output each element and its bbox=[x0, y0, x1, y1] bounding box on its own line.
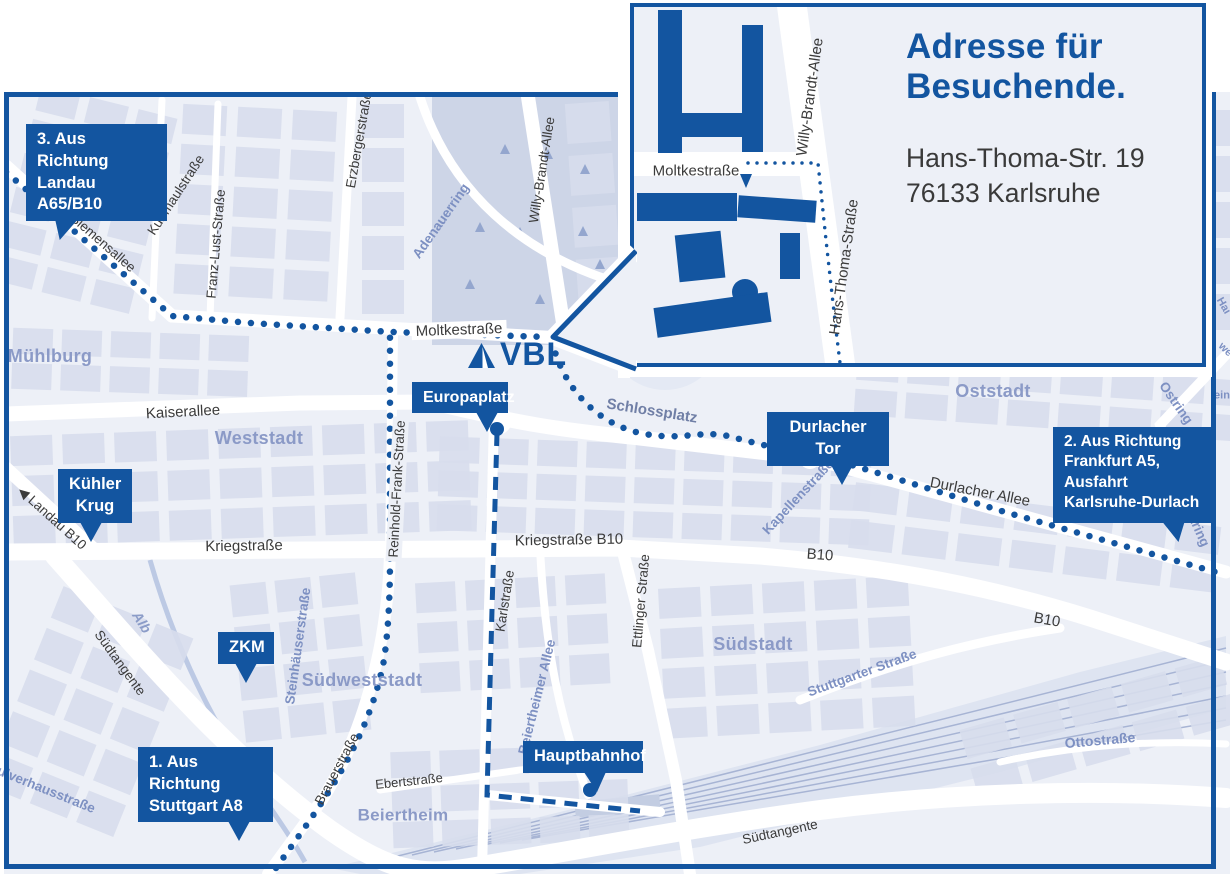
callout-kuehler-krug-pointer bbox=[80, 522, 102, 542]
visitor-address-inset: MoltkestraßeWilly-Brandt-AlleeHans-Thoma… bbox=[630, 3, 1206, 367]
callout-kuehler-krug: Kühler Krug bbox=[58, 469, 132, 523]
callout-frankfurt: 2. Aus Richtung Frankfurt A5, Ausfahrt K… bbox=[1053, 427, 1213, 523]
callout-europaplatz: Europaplatz bbox=[412, 382, 508, 413]
callout-landau-label: 3. Aus Richtung Landau A65/B10 bbox=[37, 130, 109, 213]
callout-zkm-label: ZKM bbox=[229, 638, 265, 656]
callout-durlacher-tor: Durlacher Tor bbox=[767, 412, 889, 466]
callout-frankfurt-label: 2. Aus Richtung Frankfurt A5, Ausfahrt K… bbox=[1064, 433, 1199, 511]
inset-title: Adresse für Besuchende. bbox=[906, 27, 1126, 108]
callout-landau: 3. Aus Richtung Landau A65/B10 bbox=[26, 124, 167, 221]
callout-hauptbahnhof-label: Hauptbahnhof bbox=[534, 747, 646, 765]
callout-stuttgart-label: 1. Aus Richtung Stuttgart A8 bbox=[149, 753, 243, 815]
callout-hauptbahnhof-pointer bbox=[584, 772, 608, 792]
inset-street-label-moltkestra-e: Moltkestraße bbox=[653, 164, 740, 179]
vbl-triangle-icon bbox=[468, 343, 495, 368]
inset-address: Hans-Thoma-Str. 19 76133 Karlsruhe bbox=[906, 141, 1145, 211]
callout-durlacher-tor-pointer bbox=[831, 465, 853, 485]
callout-europaplatz-pointer bbox=[476, 412, 498, 432]
inset-gap-right bbox=[1206, 0, 1212, 376]
callout-zkm: ZKM bbox=[218, 632, 274, 664]
callout-hauptbahnhof: Hauptbahnhof bbox=[523, 741, 643, 773]
callout-zkm-pointer bbox=[235, 663, 257, 683]
callout-stuttgart-pointer bbox=[228, 821, 250, 841]
vbl-logo-text: VBL bbox=[500, 342, 567, 368]
vbl-logo: VBL bbox=[468, 342, 567, 368]
callout-durlacher-tor-label: Durlacher Tor bbox=[789, 418, 866, 458]
callout-kuehler-krug-label: Kühler Krug bbox=[69, 475, 121, 515]
callout-europaplatz-label: Europaplatz bbox=[423, 389, 515, 406]
inset-gap-bottom bbox=[618, 367, 1212, 377]
callout-frankfurt-pointer bbox=[1163, 522, 1190, 542]
callout-stuttgart: 1. Aus Richtung Stuttgart A8 bbox=[138, 747, 273, 822]
